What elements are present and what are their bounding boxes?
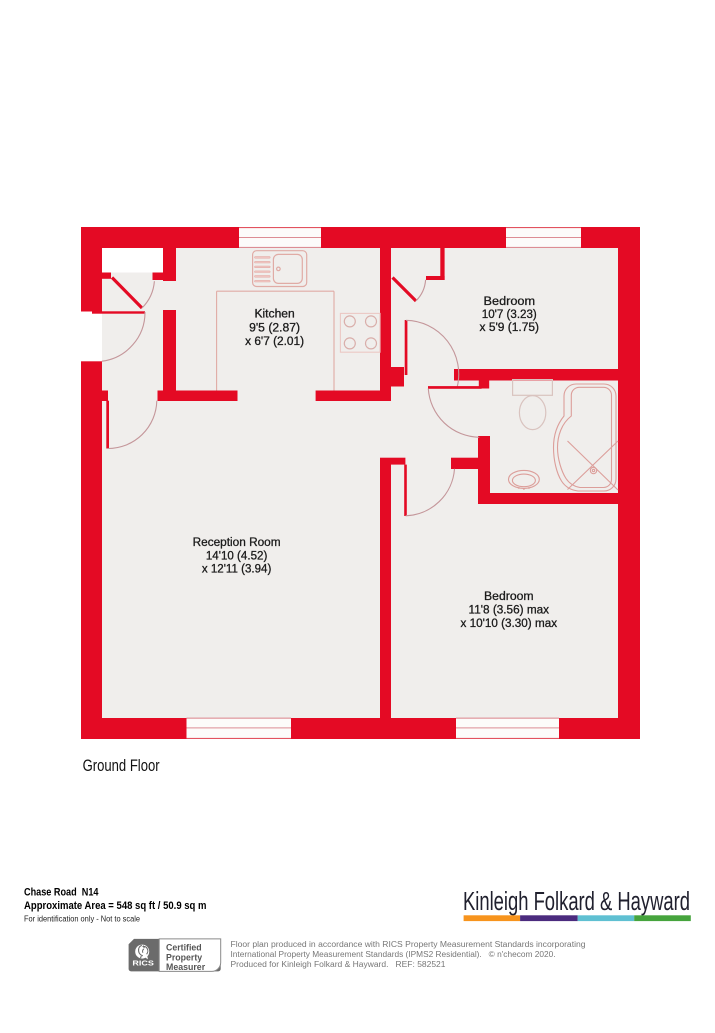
svg-text:x 12'11 (3.94): x 12'11 (3.94)	[202, 562, 272, 576]
svg-text:x 6'7 (2.01): x 6'7 (2.01)	[245, 334, 304, 348]
svg-text:11'8 (3.56) max: 11'8 (3.56) max	[469, 603, 550, 617]
svg-text:RICS: RICS	[132, 958, 154, 967]
svg-text:10'7 (3.23): 10'7 (3.23)	[482, 307, 537, 321]
svg-text:Approximate Area = 548 sq ft /: Approximate Area = 548 sq ft / 50.9 sq m	[24, 900, 207, 912]
svg-text:9'5 (2.87): 9'5 (2.87)	[249, 320, 300, 334]
svg-text:Bedroom: Bedroom	[484, 294, 536, 308]
svg-text:Kinleigh Folkard & Hayward: Kinleigh Folkard & Hayward	[463, 888, 690, 916]
svg-text:x 5'9 (1.75): x 5'9 (1.75)	[480, 320, 540, 334]
svg-text:Ground Floor: Ground Floor	[83, 757, 160, 775]
svg-text:Certified: Certified	[166, 943, 202, 953]
svg-text:Property: Property	[166, 952, 202, 962]
svg-text:Kitchen: Kitchen	[254, 307, 294, 321]
svg-text:International Property Measure: International Property Measurement Stand…	[231, 950, 556, 959]
svg-text:Measurer: Measurer	[166, 962, 206, 972]
svg-text:Bedroom: Bedroom	[484, 589, 534, 603]
svg-text:Produced for Kinleigh Folkard: Produced for Kinleigh Folkard & Hayward.…	[231, 960, 446, 969]
svg-text:x 10'10 (3.30) max: x 10'10 (3.30) max	[461, 616, 558, 630]
svg-text:Chase Road N14: Chase Road N14	[24, 887, 99, 899]
svg-text:Reception Room: Reception Room	[193, 535, 281, 549]
svg-text:14'10 (4.52): 14'10 (4.52)	[206, 548, 268, 562]
svg-text:Floor plan produced in accorda: Floor plan produced in accordance with R…	[231, 940, 586, 949]
svg-text:For identification only - Not: For identification only - Not to scale	[24, 914, 141, 923]
